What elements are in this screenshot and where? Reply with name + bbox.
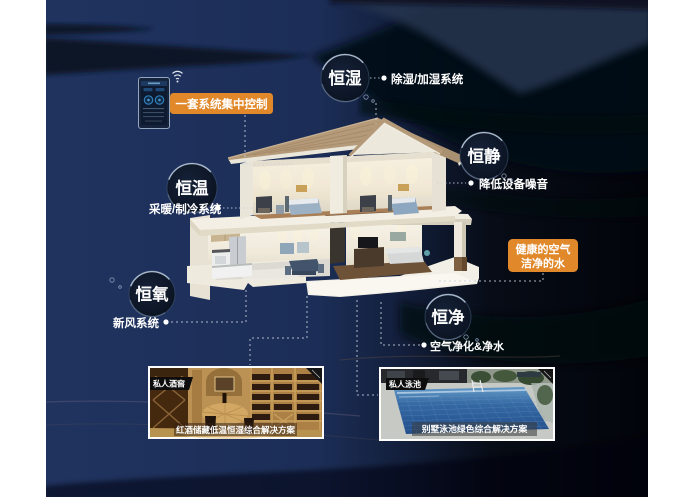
svg-text:新风系统: 新风系统 <box>113 316 159 330</box>
svg-text:私人酒窖: 私人酒窖 <box>152 379 185 389</box>
svg-text:恒氧: 恒氧 <box>136 284 170 304</box>
svg-text:空气净化&净水: 空气净化&净水 <box>430 339 505 353</box>
svg-text:恒静: 恒静 <box>468 146 502 166</box>
svg-text:除湿/加湿系统: 除湿/加湿系统 <box>391 72 464 86</box>
svg-text:降低设备噪音: 降低设备噪音 <box>479 177 548 191</box>
svg-text:私人泳池: 私人泳池 <box>388 379 421 389</box>
svg-text:别墅泳池绿色综合解决方案: 别墅泳池绿色综合解决方案 <box>421 423 528 434</box>
svg-text:一套系统集中控制: 一套系统集中控制 <box>176 97 268 111</box>
svg-text:红酒储藏低温恒湿综合解决方案: 红酒储藏低温恒湿综合解决方案 <box>176 425 296 435</box>
svg-text:采暖/制冷系统: 采暖/制冷系统 <box>148 202 222 216</box>
svg-text:恒净: 恒净 <box>432 307 466 327</box>
svg-text:恒温: 恒温 <box>176 178 210 198</box>
svg-text:洁净的水: 洁净的水 <box>521 256 566 270</box>
svg-text:恒湿: 恒湿 <box>329 68 363 88</box>
svg-text:健康的空气: 健康的空气 <box>516 242 571 256</box>
